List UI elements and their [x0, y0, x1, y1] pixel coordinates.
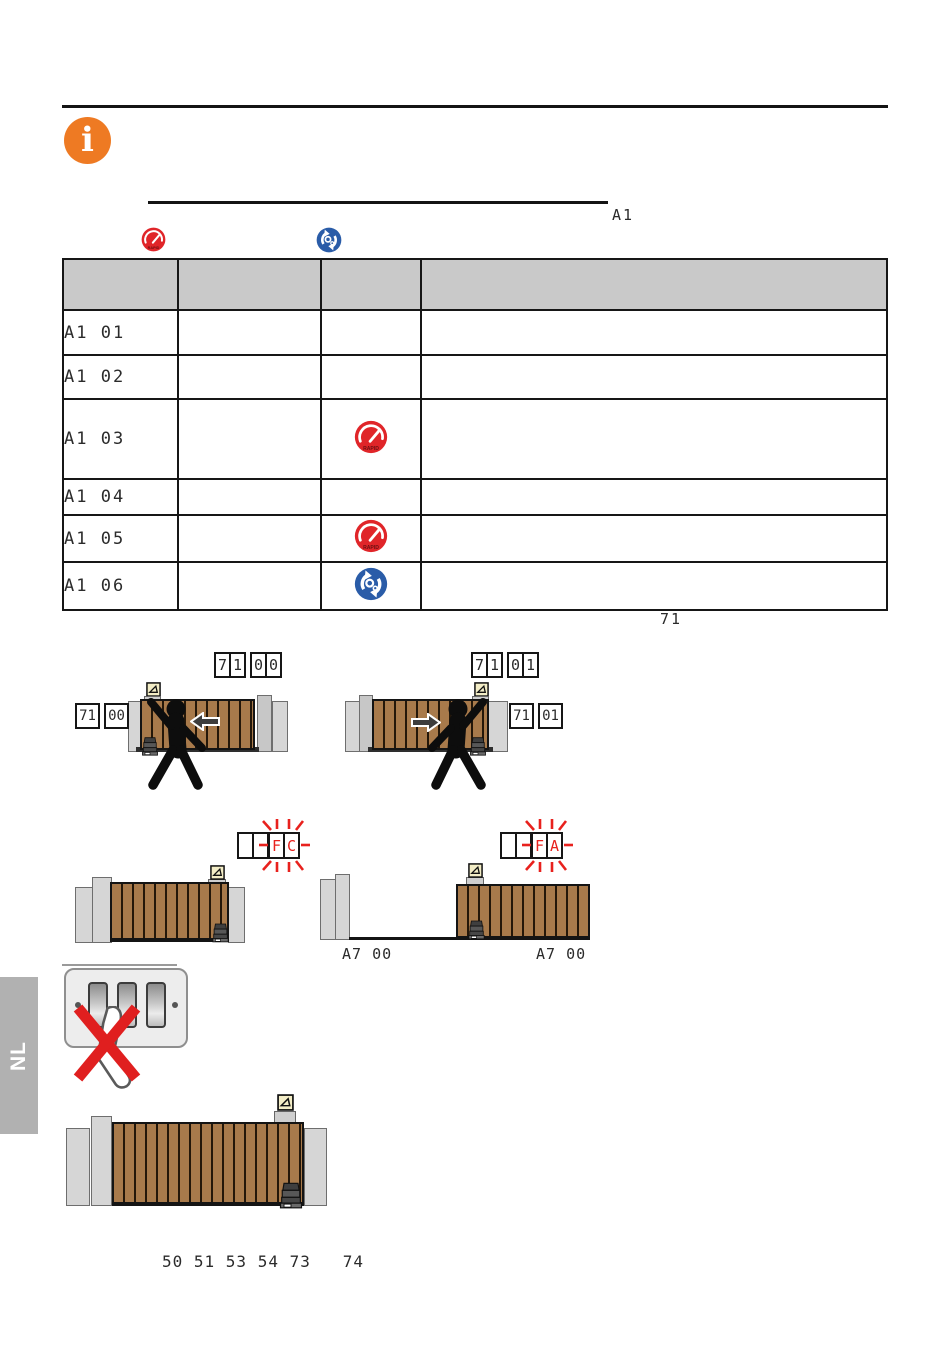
gate-post — [345, 701, 360, 752]
light-switch-diagram — [64, 968, 204, 1093]
rapid-icon: RAPID — [354, 519, 388, 553]
header-cell — [63, 259, 178, 310]
gate-motor — [468, 918, 485, 946]
rapid-icon: RAPID — [354, 420, 388, 454]
service-icon — [354, 567, 388, 601]
limit-diagram-right: 71 01 71 01 — [340, 650, 570, 792]
table-row: A1 03 RAPID — [63, 399, 887, 479]
limit-diagram-left: 71 00 71 00 — [70, 650, 300, 792]
display-fc: FC — [237, 832, 307, 860]
lcd-digit: 00 — [106, 705, 127, 727]
top-rule — [62, 105, 888, 108]
rapid-icon-label: RAPID — [363, 446, 379, 452]
flasher-lamp-icon — [468, 863, 483, 883]
lcd-digit: 71 — [77, 705, 98, 727]
gate-post — [75, 887, 93, 943]
blink-rays-icon — [251, 819, 321, 874]
param-code: A1 01 — [63, 310, 178, 355]
gate-motor — [279, 1181, 303, 1214]
param-code: A1 05 — [63, 515, 178, 562]
gate-post — [359, 695, 373, 752]
section-code: A1 — [612, 206, 634, 224]
param-code: A1 06 — [63, 562, 178, 610]
header-cell — [321, 259, 421, 310]
label-a7-00-left: A7 00 — [342, 945, 392, 963]
flasher-lamp-icon — [277, 1094, 294, 1116]
sliding-gate — [112, 1122, 304, 1206]
gate-post — [304, 1128, 327, 1206]
rocker-switch — [146, 982, 166, 1028]
header-cell — [178, 259, 321, 310]
open-gate-diagram: A7 00 A7 00 — [318, 856, 593, 964]
rapid-icon-label: RAPID — [148, 246, 160, 250]
table-row: A1 05 RAPID — [63, 515, 887, 562]
gate-post — [92, 877, 112, 943]
language-tab: NL — [0, 977, 38, 1134]
display-71-01-side: 71 01 — [509, 703, 563, 729]
gate-post — [335, 874, 350, 940]
screw — [172, 1002, 178, 1008]
table-header-row — [63, 259, 887, 310]
bottom-gate-diagram — [64, 1092, 330, 1212]
info-icon: i — [64, 117, 111, 164]
lcd-digit: 0 — [252, 654, 265, 676]
gate-post — [272, 701, 288, 752]
param-code: A1 02 — [63, 355, 178, 399]
terminal-numbers: 50 51 53 54 73 74 — [162, 1252, 364, 1271]
lcd-digit: 71 — [511, 705, 532, 727]
person-silhouette — [416, 698, 496, 795]
label-a7-00-right: A7 00 — [536, 945, 586, 963]
gate-post — [228, 887, 245, 943]
red-cross-icon — [72, 1004, 144, 1084]
gate-post — [257, 695, 272, 752]
closed-gate-diagram — [70, 860, 255, 948]
table-row: A1 02 — [63, 355, 887, 399]
gate-post — [91, 1116, 112, 1206]
lcd-digit: 1 — [522, 654, 537, 676]
legend-rapid-icon: RAPID — [141, 227, 166, 252]
lcd-digit: 01 — [540, 705, 561, 727]
gate-post — [66, 1128, 90, 1206]
param-code: A1 03 — [63, 399, 178, 479]
footnote-code: 71 — [660, 610, 682, 628]
param-code: A1 04 — [63, 479, 178, 515]
display-71-01-top: 71 01 — [471, 652, 539, 678]
info-icon-glyph: i — [81, 123, 94, 157]
rapid-icon-label: RAPID — [363, 545, 379, 551]
table-row: A1 06 — [63, 562, 887, 610]
lcd-digit: 0 — [265, 654, 280, 676]
display-71-00-side: 71 00 — [75, 703, 129, 729]
lcd-digit: 0 — [509, 654, 522, 676]
person-silhouette — [138, 698, 218, 795]
header-cell — [421, 259, 887, 310]
language-tab-label: NL — [7, 1041, 31, 1071]
gate-post — [320, 879, 336, 940]
table-row: A1 01 — [63, 310, 887, 355]
lcd-digit: 1 — [486, 654, 501, 676]
ground-line — [349, 937, 459, 940]
manual-page: i A1 RAPID — [0, 0, 950, 1348]
legend-service-icon — [316, 227, 342, 253]
display-71-00-top: 71 00 — [214, 652, 282, 678]
lcd-digit: 7 — [216, 654, 229, 676]
gate-motor — [212, 921, 229, 949]
section-underline — [148, 201, 608, 204]
parameters-table: A1 01 A1 02 A1 03 RAPID — [62, 258, 888, 611]
lcd-digit: 1 — [229, 654, 244, 676]
lcd-digit: 7 — [473, 654, 486, 676]
table-row: A1 04 — [63, 479, 887, 515]
divider-line — [62, 964, 177, 966]
